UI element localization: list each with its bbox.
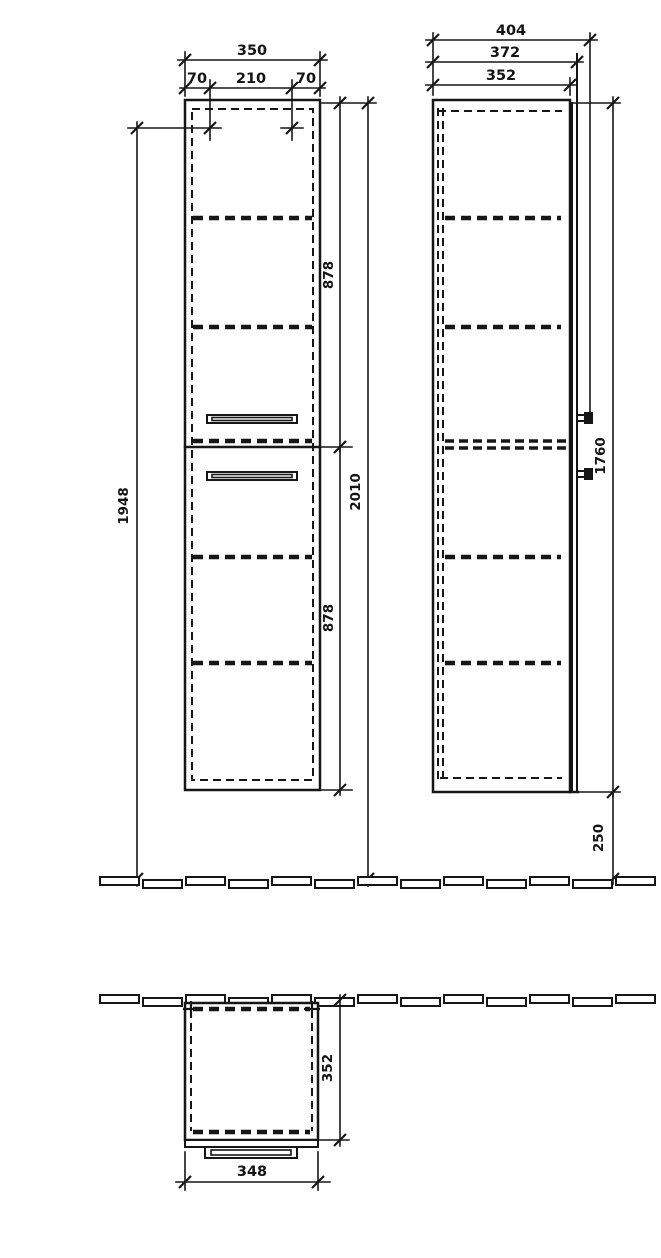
floor-hatch-line — [100, 877, 655, 888]
dim-side-depth-with-handle-label: 404 — [496, 23, 526, 39]
handle-top-view — [205, 1147, 297, 1158]
door-top-view — [185, 1140, 318, 1147]
dim-side-floor-clearance: 250 — [580, 792, 620, 885]
dim-top-depth-label: 352 — [320, 1054, 336, 1082]
cabinet-top-outline — [185, 1003, 318, 1140]
dim-front-mounting-height-label: 1948 — [116, 487, 132, 525]
dim-front-right-offset-label: 70 — [296, 71, 316, 87]
dim-side-carcass-height-label: 1760 — [593, 437, 609, 475]
upper-door-handle — [207, 415, 297, 423]
wall-hatch-line — [100, 995, 655, 1006]
cabinet-side-outline — [433, 100, 570, 792]
dim-top-width-label: 348 — [237, 1164, 267, 1180]
dim-side-floor-clearance-label: 250 — [591, 824, 607, 852]
handle-side-lower — [577, 468, 593, 480]
dim-side-depth-with-door-label: 372 — [490, 45, 520, 61]
handle-side-upper — [577, 412, 593, 424]
cabinet-top-body — [183, 1001, 320, 1158]
lower-door-handle — [207, 472, 297, 480]
dim-front-upper-section-label: 878 — [321, 261, 337, 289]
cabinet-side-body — [433, 54, 593, 792]
cabinet-front-body — [185, 100, 320, 790]
dim-front-mounting-height: 1948 — [116, 122, 143, 886]
dim-side-carcass-depth-label: 352 — [486, 68, 516, 84]
dim-top-depth: 352 — [320, 994, 349, 1146]
dim-side-carcass-height: 1760 — [572, 97, 620, 798]
dim-front-left-offset-label: 70 — [187, 71, 207, 87]
dim-side-depth-with-door: 372 — [426, 45, 583, 68]
cabinet-front-outline — [185, 100, 320, 790]
dim-front-handle-width-label: 210 — [236, 71, 266, 87]
top-view: 352 348 — [100, 994, 655, 1190]
dim-front-overall-height-label: 2010 — [348, 473, 364, 511]
dim-front-lower-section-label: 878 — [321, 604, 337, 632]
side-view: 404 372 352 1760 250 — [426, 23, 620, 885]
cabinet-dimension-drawing: 350 70 210 70 1948 — [0, 0, 661, 1258]
dim-front-overall-width-label: 350 — [237, 43, 267, 59]
technical-drawing-page: 350 70 210 70 1948 — [0, 0, 661, 1258]
front-view: 350 70 210 70 1948 — [116, 43, 376, 886]
dim-front-overall-height: 2010 — [348, 97, 374, 886]
dim-side-carcass-depth: 352 — [426, 68, 576, 95]
